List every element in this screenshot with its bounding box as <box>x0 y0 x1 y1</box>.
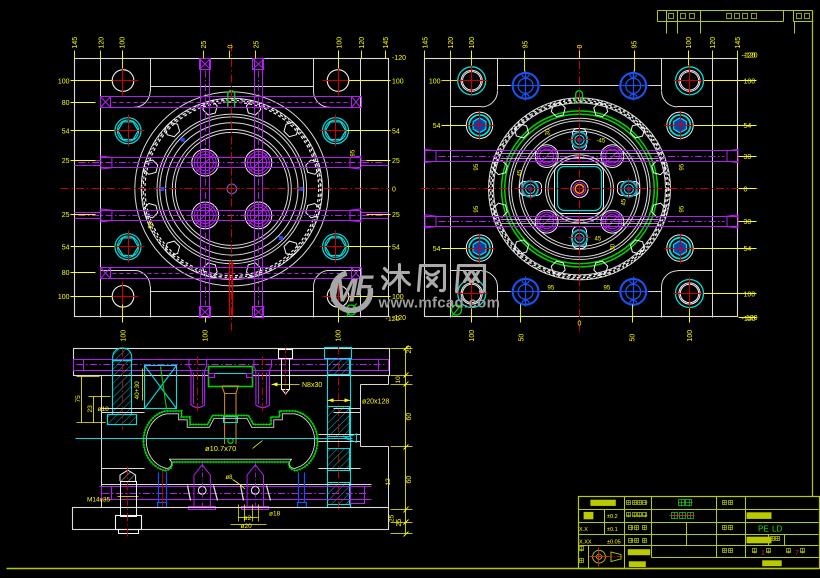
svg-text:30: 30 <box>744 154 752 161</box>
svg-text:75: 75 <box>75 395 82 403</box>
svg-text:120: 120 <box>448 37 455 49</box>
svg-text:10: 10 <box>395 376 402 384</box>
svg-text:95: 95 <box>632 41 639 49</box>
svg-text:25: 25 <box>389 514 396 522</box>
svg-text:100: 100 <box>687 330 694 342</box>
svg-text:M14x35: M14x35 <box>87 496 111 503</box>
svg-text:ø8: ø8 <box>226 475 234 481</box>
svg-text:145: 145 <box>72 37 79 49</box>
svg-text:-120: -120 <box>742 316 756 323</box>
svg-text:PE: PE <box>758 525 769 534</box>
svg-text:-120: -120 <box>744 53 758 60</box>
svg-text:145: 145 <box>423 37 430 49</box>
svg-text:54: 54 <box>433 246 441 253</box>
svg-text:25: 25 <box>62 212 70 219</box>
svg-text:100: 100 <box>337 37 344 49</box>
svg-text:25: 25 <box>406 346 413 354</box>
svg-text:100: 100 <box>121 330 128 342</box>
svg-text:45: 45 <box>518 169 524 176</box>
svg-text:25: 25 <box>62 158 70 165</box>
svg-text:25: 25 <box>253 41 260 49</box>
svg-text:ø20x128: ø20x128 <box>362 398 389 405</box>
svg-text:25: 25 <box>396 519 403 527</box>
svg-text:±0.1: ±0.1 <box>607 527 618 533</box>
svg-text:100: 100 <box>744 291 756 298</box>
svg-text:100: 100 <box>203 330 210 342</box>
svg-text:145: 145 <box>383 37 390 49</box>
svg-text:0: 0 <box>744 187 748 194</box>
svg-text:60: 60 <box>406 476 413 484</box>
svg-text:100: 100 <box>469 330 476 342</box>
svg-text:X.XX: X.XX <box>579 540 592 546</box>
svg-text:ø20: ø20 <box>241 523 253 530</box>
svg-text:100: 100 <box>744 79 756 86</box>
svg-text:M: M <box>331 273 359 309</box>
svg-text:54: 54 <box>62 245 70 252</box>
svg-text:ø18: ø18 <box>269 510 281 517</box>
svg-text:120: 120 <box>98 37 105 49</box>
svg-text:-120: -120 <box>386 316 400 323</box>
svg-text:95: 95 <box>474 163 480 170</box>
svg-text:45: 45 <box>595 237 602 243</box>
svg-text:40+30: 40+30 <box>134 381 141 400</box>
svg-text:25: 25 <box>392 158 400 165</box>
svg-text:100: 100 <box>120 37 127 49</box>
svg-text:95: 95 <box>351 149 357 156</box>
svg-text:50: 50 <box>519 334 526 342</box>
svg-text:25: 25 <box>392 212 400 219</box>
svg-text:54: 54 <box>433 123 441 130</box>
svg-text:±0.05: ±0.05 <box>607 540 621 546</box>
svg-text:12: 12 <box>385 478 392 486</box>
svg-text:LD: LD <box>772 525 782 534</box>
svg-text:30: 30 <box>611 243 617 250</box>
svg-text:54: 54 <box>392 245 400 252</box>
svg-text:0: 0 <box>227 45 234 49</box>
svg-text:23: 23 <box>87 405 94 413</box>
svg-text:145: 145 <box>735 37 742 49</box>
svg-text:0: 0 <box>392 187 396 194</box>
svg-text:30: 30 <box>744 219 752 226</box>
svg-text:80: 80 <box>62 270 70 277</box>
svg-text:7: 7 <box>795 550 799 557</box>
svg-text:25: 25 <box>201 41 208 49</box>
svg-text:60: 60 <box>406 413 413 421</box>
svg-text:1: 1 <box>761 550 765 557</box>
svg-text:100: 100 <box>392 78 404 85</box>
svg-text:www.mfcad.com: www.mfcad.com <box>378 295 501 312</box>
svg-text:95: 95 <box>523 41 530 49</box>
svg-text:X.X: X.X <box>579 527 588 533</box>
svg-text:120: 120 <box>710 37 717 49</box>
svg-text:-45: -45 <box>597 139 606 145</box>
svg-text:45: 45 <box>622 198 628 205</box>
svg-text:F: F <box>356 271 375 303</box>
svg-text:100: 100 <box>58 78 70 85</box>
svg-text:95: 95 <box>604 286 611 292</box>
svg-text:100: 100 <box>336 330 343 342</box>
svg-text:95: 95 <box>474 205 480 212</box>
svg-text:50: 50 <box>630 334 637 342</box>
svg-text:-120: -120 <box>392 55 406 62</box>
svg-text:54: 54 <box>392 129 400 136</box>
svg-text:0: 0 <box>578 321 582 328</box>
svg-text:54: 54 <box>744 246 752 253</box>
svg-text:0: 0 <box>577 45 584 49</box>
svg-text:N8x30: N8x30 <box>302 382 322 389</box>
svg-text:100: 100 <box>686 37 693 49</box>
svg-text:95: 95 <box>680 163 686 170</box>
svg-text:100: 100 <box>429 79 441 86</box>
svg-text:54: 54 <box>62 129 70 136</box>
svg-text:30: 30 <box>546 128 552 135</box>
svg-text:54: 54 <box>744 123 752 130</box>
svg-text:ø18: ø18 <box>98 406 110 413</box>
svg-text:120: 120 <box>359 37 366 49</box>
svg-text:100: 100 <box>469 37 476 49</box>
svg-text:±0.2: ±0.2 <box>607 514 618 520</box>
svg-text:80: 80 <box>62 100 70 107</box>
svg-text:95: 95 <box>149 221 155 228</box>
svg-text:95: 95 <box>680 205 686 212</box>
svg-text:ø10.7x70: ø10.7x70 <box>205 444 236 453</box>
svg-text:95: 95 <box>548 286 555 292</box>
svg-text:100: 100 <box>58 294 70 301</box>
